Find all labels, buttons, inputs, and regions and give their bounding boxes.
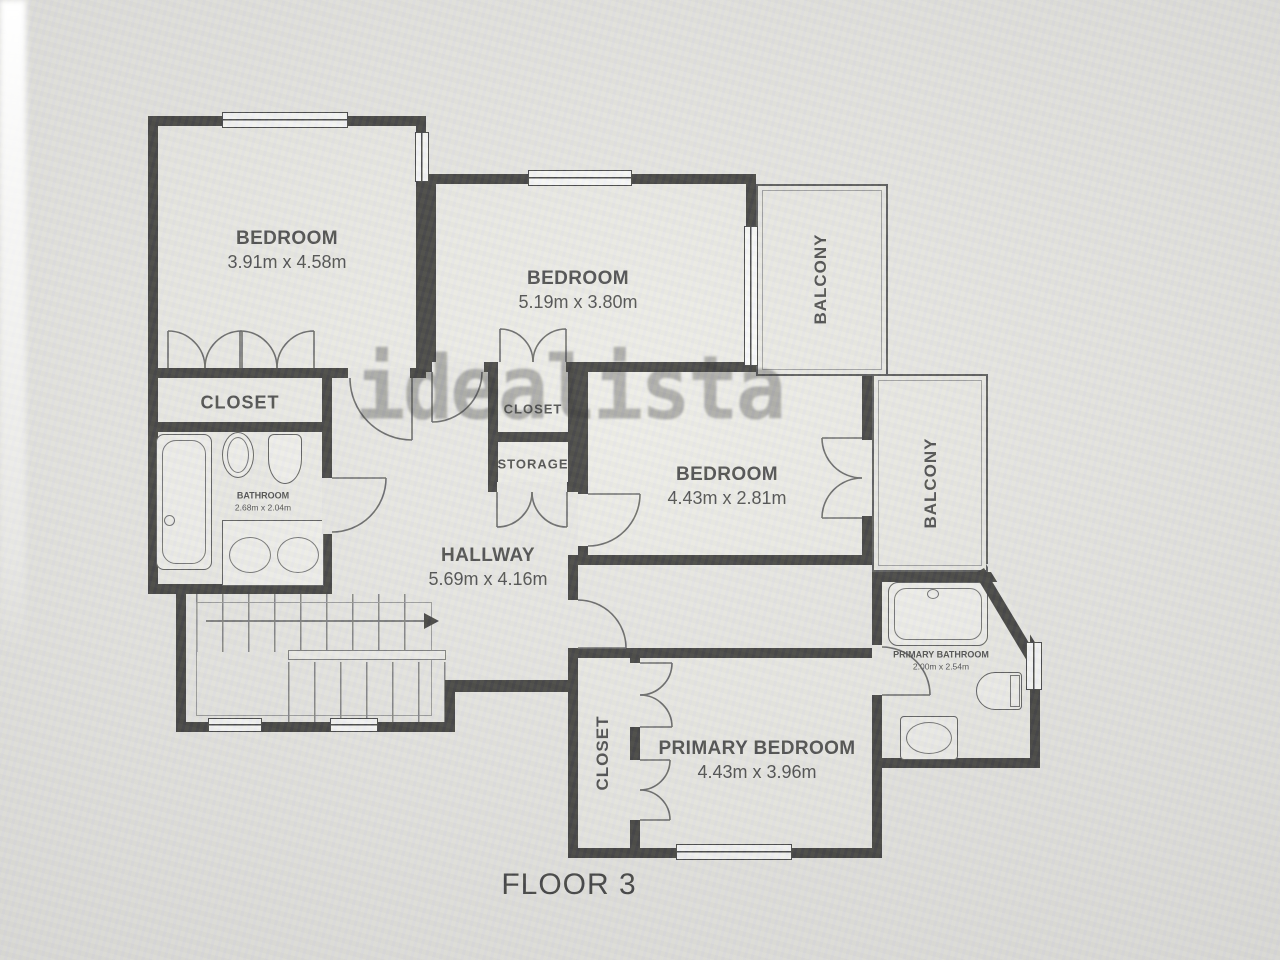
primary-tub-drain <box>927 589 939 599</box>
vanity-sink-left <box>229 537 271 573</box>
label-balcony-right: BALCONY <box>921 437 941 528</box>
window-stairs-1 <box>208 718 262 732</box>
door-arc-primary-closet-a2 <box>640 695 672 727</box>
door-arc-bedroom3-balcony-a <box>822 438 862 478</box>
doorway-storage <box>497 482 567 492</box>
bathroom-dims: 2.68m x 2.04m <box>235 502 291 513</box>
doorway-primary-bath <box>872 645 882 695</box>
bedroom3-name: BEDROOM <box>667 463 786 487</box>
wall-hall-right-segment <box>568 555 578 600</box>
door-arc-closet1-left-b <box>205 331 242 368</box>
floor-title: FLOOR 3 <box>501 868 636 902</box>
floor-plan-photo: BEDROOM 3.91m x 4.58m BEDROOM 5.19m x 3.… <box>0 0 1280 960</box>
doorway-bathroom <box>322 478 332 534</box>
bedroom3-dims: 4.43m x 2.81m <box>667 487 786 510</box>
label-closet-mid: CLOSET <box>504 402 563 417</box>
primary-toilet <box>976 672 1022 710</box>
door-arc-bedroom2-entry <box>432 372 482 422</box>
bathroom-name: BATHROOM <box>235 491 291 503</box>
window-bedroom2-top <box>528 170 632 186</box>
doorway-suite-entry <box>568 600 578 648</box>
toilet <box>222 432 254 478</box>
door-arc-suite-entry <box>578 600 626 648</box>
doorway-bedroom3 <box>578 494 588 546</box>
wall-hall-bottom <box>445 680 578 692</box>
primary-sink <box>900 716 958 760</box>
label-closet-primary: CLOSET <box>593 716 613 791</box>
primary-shower-tub <box>888 582 988 646</box>
label-primary-bathroom: PRIMARY BATHROOM 2.00m x 2.54m <box>893 650 989 673</box>
primary-bedroom-name: PRIMARY BEDROOM <box>658 737 855 761</box>
window-bedroom2-balcony <box>744 226 758 366</box>
bedroom1-name: BEDROOM <box>227 227 346 251</box>
bedroom2-dims: 5.19m x 3.80m <box>518 291 637 314</box>
primary-sink-bowl <box>906 722 952 754</box>
stairs-lower-flight <box>288 662 446 722</box>
door-arc-storage-a <box>497 492 532 527</box>
toilet-bowl <box>227 437 249 473</box>
door-arc-closet1-right-a <box>240 331 277 368</box>
wall-primary-closet-divider-mid <box>630 727 640 760</box>
primary-bathroom-dims: 2.00m x 2.54m <box>893 661 989 672</box>
doorway-bedroom2 <box>432 362 484 372</box>
wall-stair-left <box>176 584 186 732</box>
stairs-rail <box>288 650 446 660</box>
primary-bedroom-dims: 4.43m x 3.96m <box>658 761 855 784</box>
door-arc-bedroom1-entry <box>350 378 412 440</box>
window-stairs-2 <box>330 718 378 732</box>
label-bathroom: BATHROOM 2.68m x 2.04m <box>235 491 291 514</box>
bathtub <box>156 434 212 570</box>
door-arc-closet1-left-a <box>168 331 205 368</box>
door-arc-closet1-right-b <box>277 331 314 368</box>
vanity-sink-right <box>277 537 319 573</box>
door-arc-bedroom3-entry <box>588 494 640 546</box>
bedroom1-dims: 3.91m x 4.58m <box>227 251 346 274</box>
bedroom2-name: BEDROOM <box>518 267 637 291</box>
label-bedroom-1: BEDROOM 3.91m x 4.58m <box>227 227 346 273</box>
vanity <box>222 520 324 586</box>
door-arc-primary-closet-b2 <box>640 790 670 820</box>
window-bedroom1-top <box>222 112 348 128</box>
wall-primary-closet-divider-top <box>630 656 640 663</box>
wall-stair-connector <box>148 584 186 594</box>
label-balcony-top: BALCONY <box>811 233 831 324</box>
door-arc-primary-closet-a1 <box>640 663 672 695</box>
doorway-closet-mid <box>498 362 566 372</box>
door-arc-closet-mid-a <box>500 329 533 362</box>
doorway-bedroom1 <box>348 368 410 378</box>
primary-toilet-tank <box>1010 675 1020 707</box>
primary-bathroom-name: PRIMARY BATHROOM <box>893 650 989 662</box>
window-primary-bedroom <box>676 844 792 860</box>
hallway-dims: 5.69m x 4.16m <box>428 568 547 591</box>
hallway-name: HALLWAY <box>428 544 547 568</box>
bathtub-drain <box>164 515 175 526</box>
label-closet-1: CLOSET <box>200 393 279 414</box>
bathtub-basin <box>162 440 206 564</box>
bidet <box>268 434 302 484</box>
label-bedroom-2: BEDROOM 5.19m x 3.80m <box>518 267 637 313</box>
window-primary-bath <box>1026 642 1042 690</box>
label-storage: STORAGE <box>497 457 568 472</box>
label-primary-bedroom: PRIMARY BEDROOM 4.43m x 3.96m <box>658 737 855 783</box>
door-arc-storage-b <box>532 492 567 527</box>
door-arc-bedroom3-balcony-b <box>822 478 862 518</box>
door-arc-closet-mid-b <box>533 329 566 362</box>
stairs-direction-line <box>206 620 424 622</box>
wall-primary-closet-divider-bottom <box>630 820 640 858</box>
doorway-bedroom3-balcony <box>862 440 872 516</box>
label-hallway: HALLWAY 5.69m x 4.16m <box>428 544 547 590</box>
photo-edge-highlight <box>0 0 26 660</box>
door-arc-bathroom <box>332 478 386 532</box>
label-bedroom-3: BEDROOM 4.43m x 2.81m <box>667 463 786 509</box>
stairs-direction-arrow <box>424 613 439 629</box>
window-bedroom1-right <box>415 132 429 182</box>
